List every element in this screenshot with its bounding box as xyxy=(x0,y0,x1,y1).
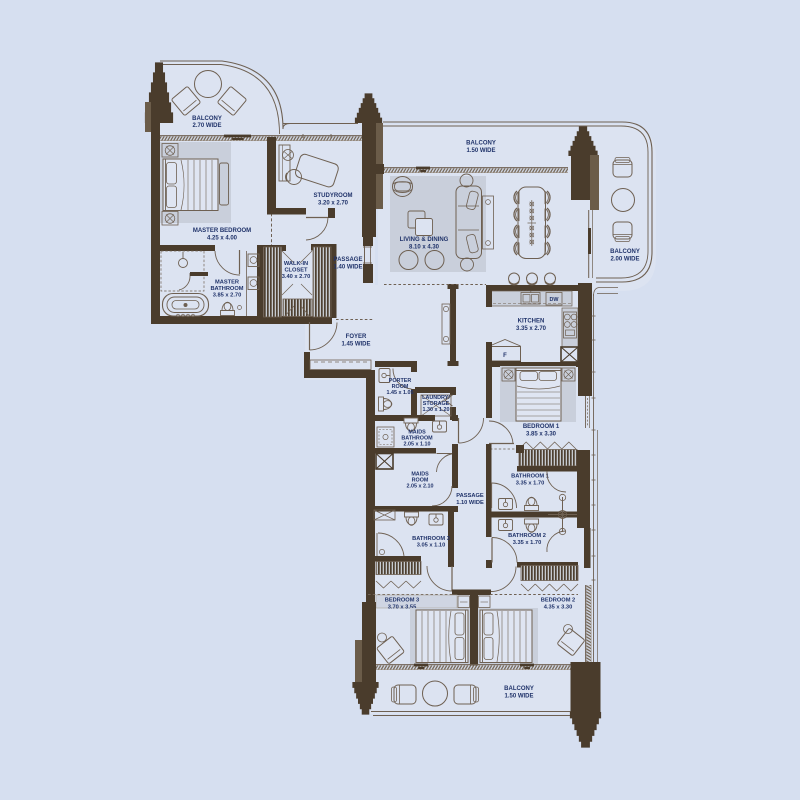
svg-text:BEDROOM 3: BEDROOM 3 xyxy=(385,598,419,604)
svg-text:BATHROOM 1: BATHROOM 1 xyxy=(511,474,549,480)
svg-text:BATHROOM: BATHROOM xyxy=(210,286,243,292)
svg-text:3.35 x 1.70: 3.35 x 1.70 xyxy=(513,540,541,546)
svg-text:BALCONY: BALCONY xyxy=(504,686,534,692)
svg-text:2.05 x 2.10: 2.05 x 2.10 xyxy=(407,484,434,490)
svg-text:1.50 WIDE: 1.50 WIDE xyxy=(466,148,495,154)
svg-text:1.45 x 1.05: 1.45 x 1.05 xyxy=(387,390,414,396)
svg-text:4.35 x 3.30: 4.35 x 3.30 xyxy=(544,605,572,611)
svg-text:KITCHEN: KITCHEN xyxy=(518,319,545,325)
svg-text:BATHROOM 2: BATHROOM 2 xyxy=(508,533,546,539)
svg-text:3.20 x 2.70: 3.20 x 2.70 xyxy=(318,201,349,207)
svg-text:FOYER: FOYER xyxy=(346,334,367,340)
svg-text:3.05 x 1.10: 3.05 x 1.10 xyxy=(417,543,445,549)
svg-text:BALCONY: BALCONY xyxy=(466,141,496,147)
svg-text:DW: DW xyxy=(550,297,560,303)
svg-text:3.35 x 2.70: 3.35 x 2.70 xyxy=(516,326,547,332)
svg-text:1.45 WIDE: 1.45 WIDE xyxy=(341,342,370,348)
svg-text:PASSAGE: PASSAGE xyxy=(456,493,484,499)
svg-text:2.70 WIDE: 2.70 WIDE xyxy=(192,123,221,129)
svg-text:1.40 WIDE: 1.40 WIDE xyxy=(333,265,362,271)
svg-text:BEDROOM 2: BEDROOM 2 xyxy=(541,598,575,604)
svg-text:3.35 x 1.70: 3.35 x 1.70 xyxy=(516,481,544,487)
svg-text:BALCONY: BALCONY xyxy=(192,116,222,122)
svg-text:2.00 WIDE: 2.00 WIDE xyxy=(610,257,639,263)
svg-text:1.50 WIDE: 1.50 WIDE xyxy=(504,694,533,700)
svg-text:STUDYROOM: STUDYROOM xyxy=(314,193,353,199)
svg-text:CLOSET: CLOSET xyxy=(284,268,308,274)
svg-text:3.85 x 2.70: 3.85 x 2.70 xyxy=(213,293,241,299)
svg-text:PASSAGE: PASSAGE xyxy=(334,257,363,263)
svg-text:LIVING & DINING: LIVING & DINING xyxy=(400,237,449,243)
svg-text:4.25 x 4.00: 4.25 x 4.00 xyxy=(207,236,238,242)
svg-text:F: F xyxy=(503,353,507,359)
svg-text:3.40 x 2.70: 3.40 x 2.70 xyxy=(282,274,310,280)
svg-text:2.05 x 1.10: 2.05 x 1.10 xyxy=(404,442,431,448)
svg-text:BALCONY: BALCONY xyxy=(610,249,640,255)
svg-text:1.10 WIDE: 1.10 WIDE xyxy=(456,500,484,506)
svg-text:MASTER BEDROOM: MASTER BEDROOM xyxy=(193,228,251,234)
svg-text:MASTER: MASTER xyxy=(215,280,239,286)
svg-text:BATHROOM 3: BATHROOM 3 xyxy=(412,536,450,542)
svg-text:1.30 x 1.20: 1.30 x 1.20 xyxy=(423,407,450,413)
svg-text:WALK-IN: WALK-IN xyxy=(284,261,308,267)
svg-text:3.85 x 3.30: 3.85 x 3.30 xyxy=(526,432,557,438)
svg-text:8.10 x 4.30: 8.10 x 4.30 xyxy=(409,245,440,251)
svg-text:BEDROOM 1: BEDROOM 1 xyxy=(523,424,560,430)
